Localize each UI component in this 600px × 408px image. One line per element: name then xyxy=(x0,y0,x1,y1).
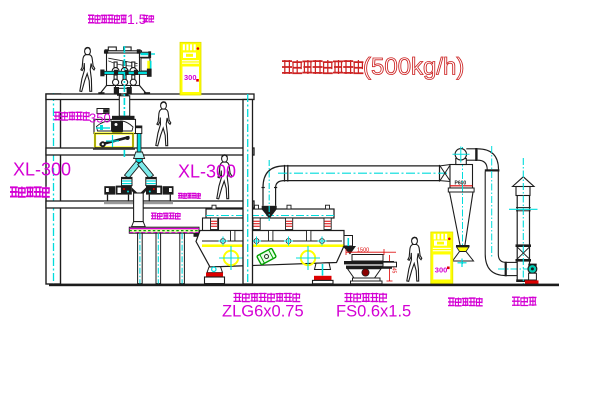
svg-text:350: 350 xyxy=(89,111,111,126)
svg-text:300: 300 xyxy=(435,266,448,275)
svg-text:(500kg/h): (500kg/h) xyxy=(363,54,464,81)
svg-text:XL-300: XL-300 xyxy=(178,162,236,182)
svg-text:FS0.6x1.5: FS0.6x1.5 xyxy=(336,303,411,321)
svg-text:ZLG6x0.75: ZLG6x0.75 xyxy=(222,303,304,321)
svg-text:XL-300: XL-300 xyxy=(13,160,71,180)
svg-text:300: 300 xyxy=(184,73,197,82)
svg-text:1500: 1500 xyxy=(357,248,369,254)
